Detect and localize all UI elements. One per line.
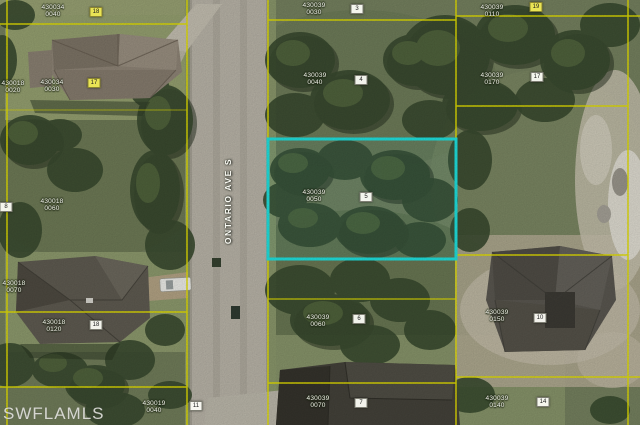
aerial-photo [0, 0, 640, 425]
aerial-parcel-map: ONTARIO AVE S 4300340040 4300180020 4300… [0, 0, 640, 425]
